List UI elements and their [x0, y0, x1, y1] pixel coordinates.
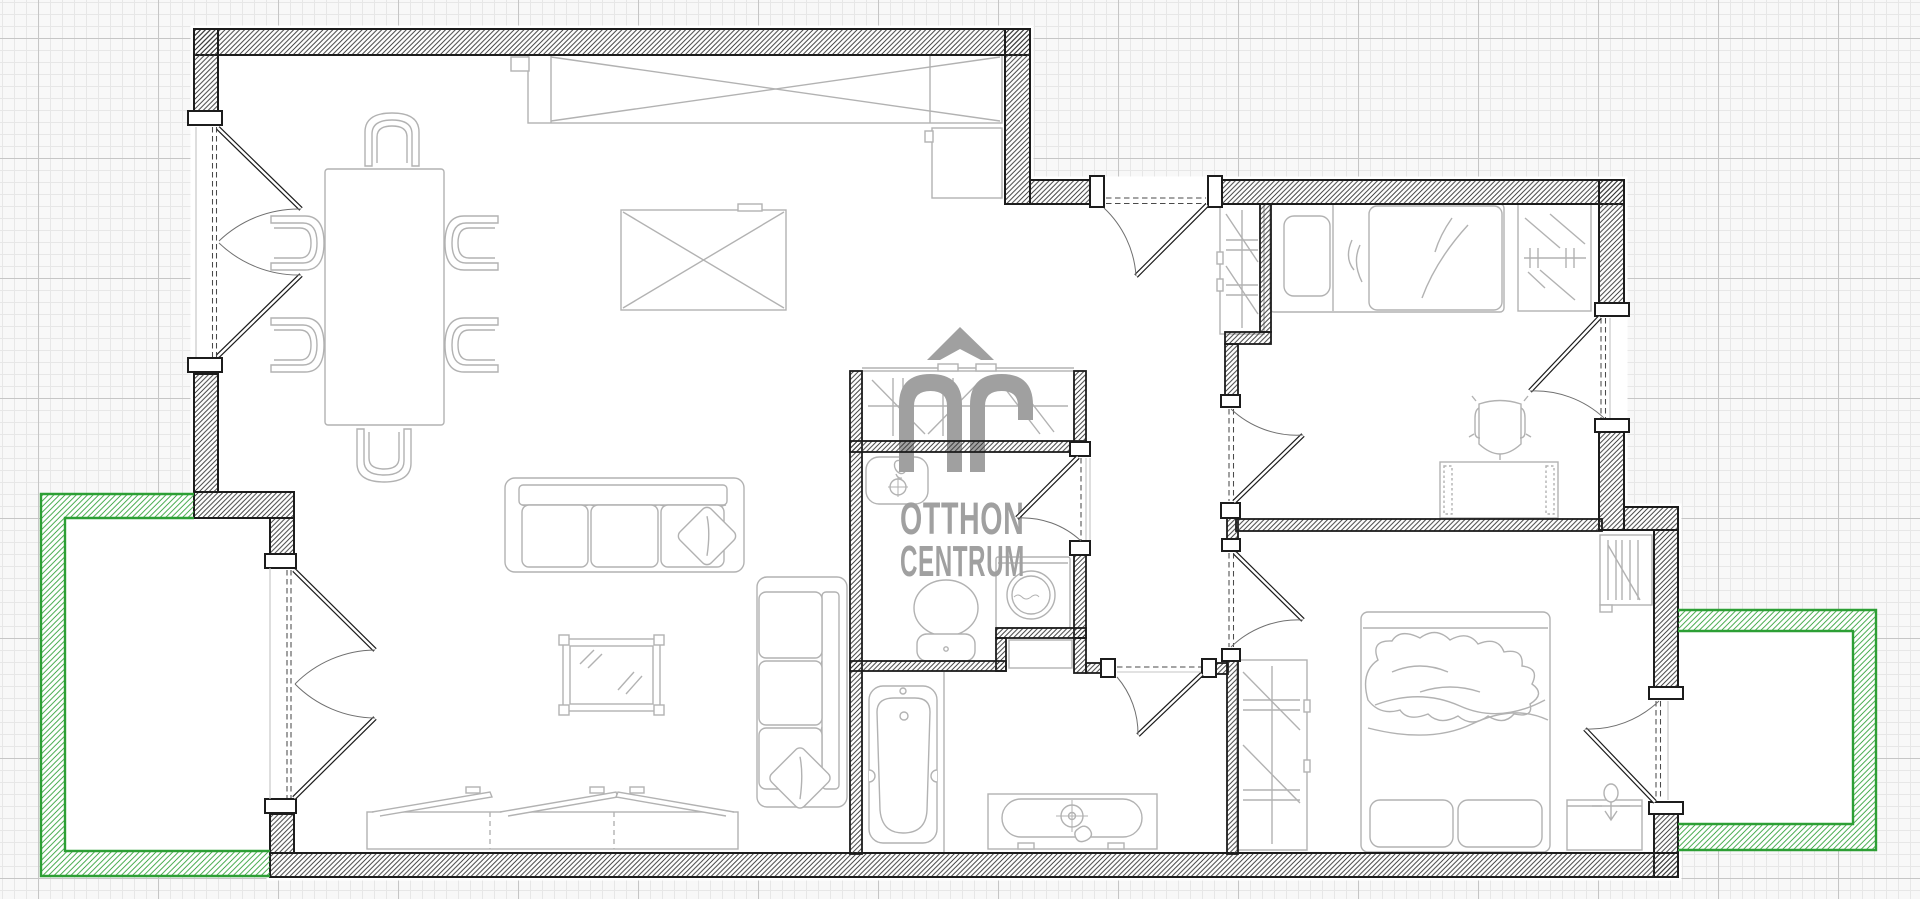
svg-text:CENTRUM: CENTRUM	[900, 536, 1025, 586]
